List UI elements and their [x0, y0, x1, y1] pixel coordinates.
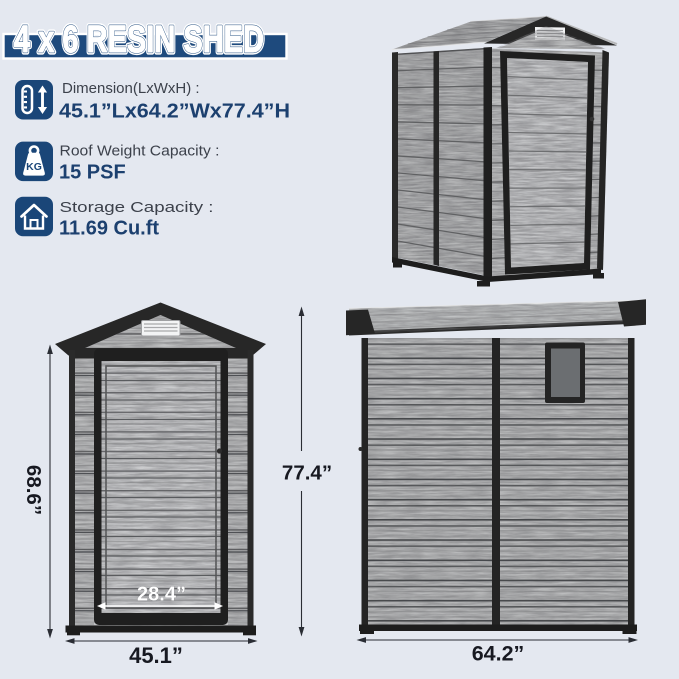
svg-text:Storage Capacity :: Storage Capacity : [60, 199, 214, 216]
svg-text:45.1”Lx64.2”Wx77.4”H: 45.1”Lx64.2”Wx77.4”H [59, 100, 290, 122]
svg-text:28.4”: 28.4” [137, 584, 186, 606]
svg-text:45.1”: 45.1” [129, 643, 183, 668]
svg-text:68.6”: 68.6” [22, 465, 45, 515]
svg-text:11.69 Cu.ft: 11.69 Cu.ft [59, 217, 159, 239]
svg-text:64.2”: 64.2” [472, 642, 525, 666]
svg-text:KG: KG [26, 161, 42, 173]
svg-text:Roof Weight Capacity :: Roof Weight Capacity : [60, 142, 220, 159]
svg-text:15 PSF: 15 PSF [59, 162, 126, 184]
svg-text:77.4”: 77.4” [282, 461, 332, 484]
svg-text:4 x 6 RESIN SHED: 4 x 6 RESIN SHED [14, 19, 264, 61]
svg-text:Dimension(LxWxH) :: Dimension(LxWxH) : [62, 80, 200, 97]
